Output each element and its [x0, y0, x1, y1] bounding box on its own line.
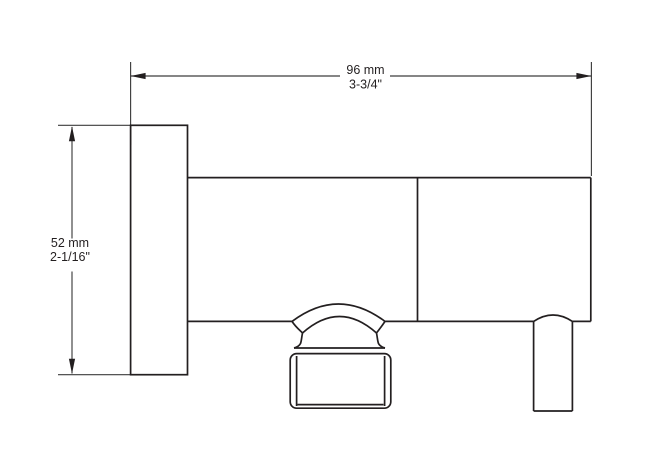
- width-dim-metric-label: 96 mm: [346, 63, 384, 77]
- outlet-dome-left-fillet: [292, 321, 303, 333]
- width-dimension: 96 mm 3-3/4": [131, 62, 592, 176]
- outlet-pipe: [534, 315, 573, 411]
- fixture-outline: [131, 125, 591, 411]
- outlet-neck-left-edge: [294, 333, 303, 348]
- height-dimension: 52 mm 2-1/16": [50, 125, 130, 374]
- dimension-diagram: 96 mm 3-3/4" 52 mm 2-1/16": [0, 0, 652, 453]
- height-dim-metric-label: 52 mm: [51, 236, 89, 250]
- dim-arrow-left-icon: [131, 73, 146, 79]
- outlet-neck-right-edge: [377, 333, 386, 348]
- height-dim-imperial-label: 2-1/16": [50, 250, 90, 264]
- wall-plate: [131, 125, 188, 374]
- outlet-dome-outer-arc: [292, 304, 385, 321]
- outlet-dome-right-fillet: [377, 321, 386, 333]
- dim-arrow-up-icon: [69, 126, 75, 141]
- bottom-outlet-port: [290, 304, 391, 408]
- pipe-top-arc: [534, 315, 573, 321]
- outlet-hex-nut: [290, 354, 391, 409]
- valve-body: [188, 178, 591, 322]
- outlet-dome-inner-arc: [303, 317, 377, 334]
- dim-arrow-right-icon: [576, 73, 591, 79]
- width-dim-imperial-label: 3-3/4": [349, 78, 382, 92]
- dim-arrow-down-icon: [69, 359, 75, 374]
- technical-drawing-canvas: 96 mm 3-3/4" 52 mm 2-1/16": [0, 0, 652, 453]
